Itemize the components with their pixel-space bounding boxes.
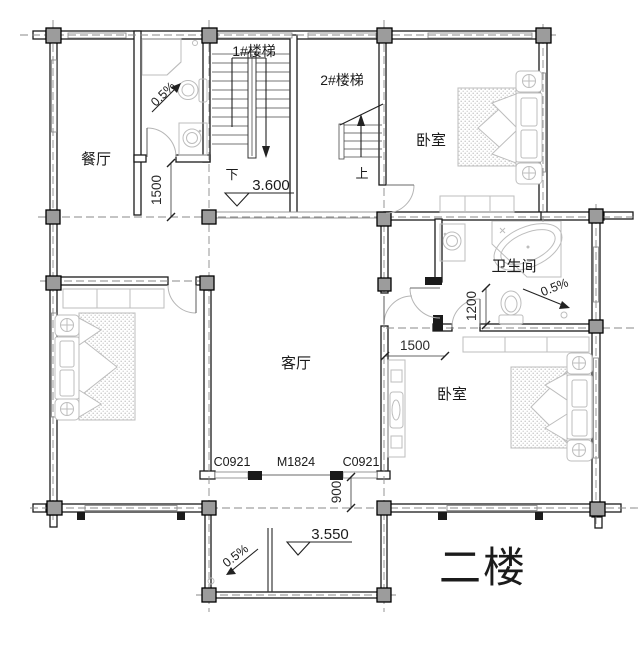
dim-balcony-offset: 900 (329, 481, 344, 504)
floor-plan-page: 餐厅 1#楼梯 2#楼梯 卧室 卫生间 客厅 卧室 下 上 3.600 3.55… (0, 0, 640, 647)
stair-2 (339, 104, 383, 159)
floor-plan-drawing: 餐厅 1#楼梯 2#楼梯 卧室 卫生间 客厅 卧室 下 上 3.600 3.55… (0, 0, 640, 647)
stair2-direction-label: 上 (355, 166, 368, 181)
slope-top-bathroom: 0.5% (148, 79, 178, 109)
stair-1 (212, 52, 290, 158)
sink-bath (440, 224, 465, 261)
bed-bottom-left (55, 313, 135, 420)
slope-bathroom: 0.5% (539, 275, 571, 299)
room-label-bathroom: 卫生间 (491, 258, 536, 275)
code-door-center: M1824 (277, 455, 315, 469)
room-label-living: 客厅 (281, 355, 311, 372)
room-label-bedroom-bottom-right: 卧室 (437, 386, 467, 403)
level-balcony: 3.550 (311, 526, 349, 543)
dim-corridor-width: 1500 (400, 338, 430, 353)
shower (142, 39, 181, 75)
room-label-stair1: 1#楼梯 (232, 43, 276, 59)
bed-top-right (458, 71, 542, 184)
stair1-direction-label: 下 (225, 167, 238, 182)
slope-balcony: 0.5% (220, 542, 251, 571)
toilet-bath (499, 291, 523, 324)
floor-title: 二楼 (439, 544, 527, 591)
room-label-dining: 餐厅 (81, 151, 111, 168)
room-label-bedroom-top-right: 卧室 (416, 132, 446, 149)
dim-bathroom-door-offset: 1200 (464, 291, 479, 321)
room-label-stair2: 2#楼梯 (320, 72, 364, 88)
level-stair-landing: 3.600 (252, 177, 290, 194)
dresser-bottom-right (388, 360, 405, 457)
dim-hall-width: 1500 (149, 175, 164, 205)
bed-bottom-right (511, 353, 592, 461)
code-window-right: C0921 (343, 455, 380, 469)
code-window-left: C0921 (214, 455, 251, 469)
